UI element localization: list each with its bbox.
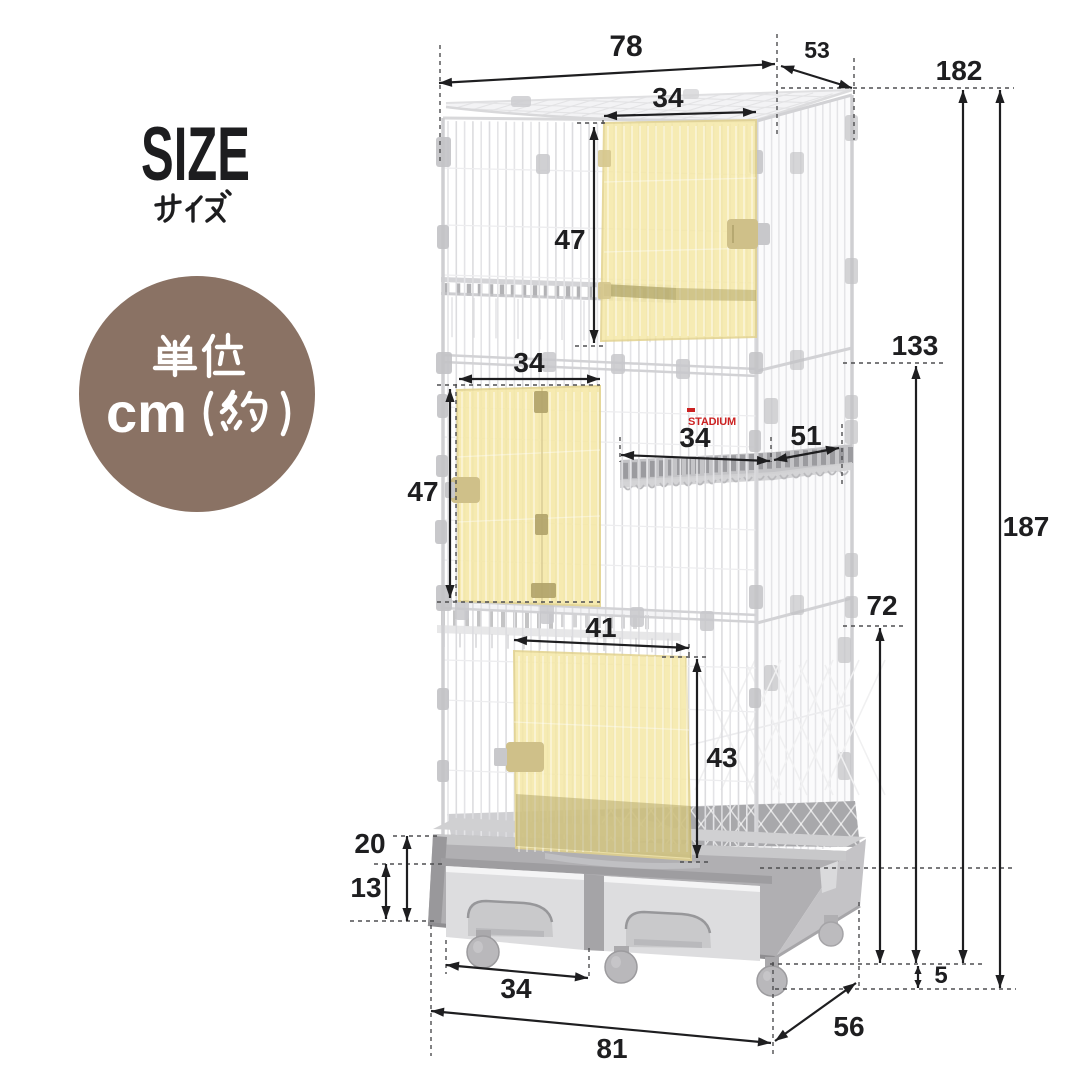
svg-text:34: 34 [652,82,684,113]
svg-text:13: 13 [350,872,381,903]
svg-text:187: 187 [1003,511,1050,542]
svg-text:47: 47 [407,476,438,507]
svg-text:56: 56 [833,1011,864,1042]
svg-text:53: 53 [804,37,830,63]
svg-text:34: 34 [500,973,532,1004]
svg-text:47: 47 [554,224,585,255]
svg-text:5: 5 [934,962,947,989]
svg-text:43: 43 [706,742,737,773]
svg-text:72: 72 [866,590,897,621]
svg-text:81: 81 [596,1033,627,1064]
svg-text:20: 20 [354,828,385,859]
svg-text:133: 133 [892,330,939,361]
svg-text:34: 34 [513,347,545,378]
svg-text:cm: cm [106,381,187,444]
svg-text:78: 78 [609,30,642,63]
svg-text:34: 34 [679,422,711,453]
svg-text:41: 41 [585,612,616,643]
svg-text:182: 182 [936,55,983,86]
svg-text:SIZE: SIZE [141,111,250,197]
svg-text:51: 51 [790,420,821,451]
